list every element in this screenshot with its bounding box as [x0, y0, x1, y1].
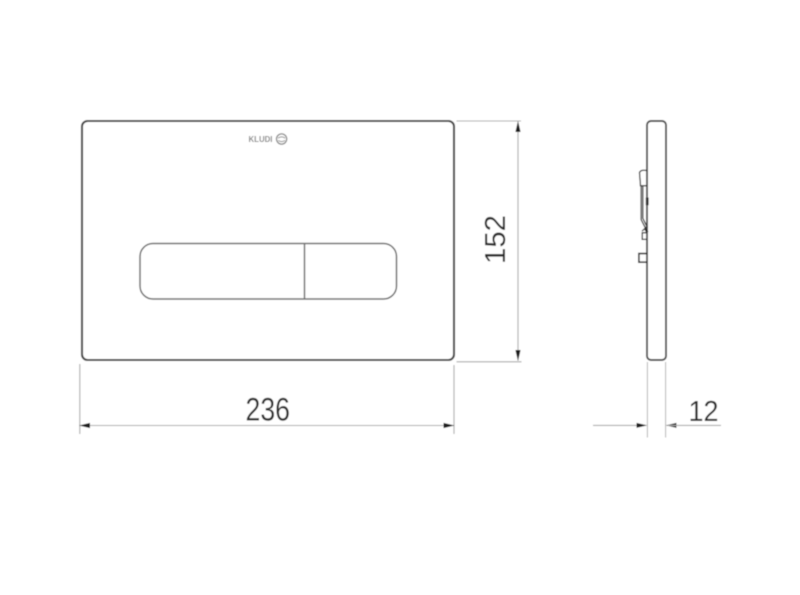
svg-text:KLUDI: KLUDI	[249, 134, 273, 144]
svg-text:152: 152	[480, 215, 512, 264]
svg-text:236: 236	[246, 391, 291, 427]
svg-text:12: 12	[689, 396, 719, 428]
